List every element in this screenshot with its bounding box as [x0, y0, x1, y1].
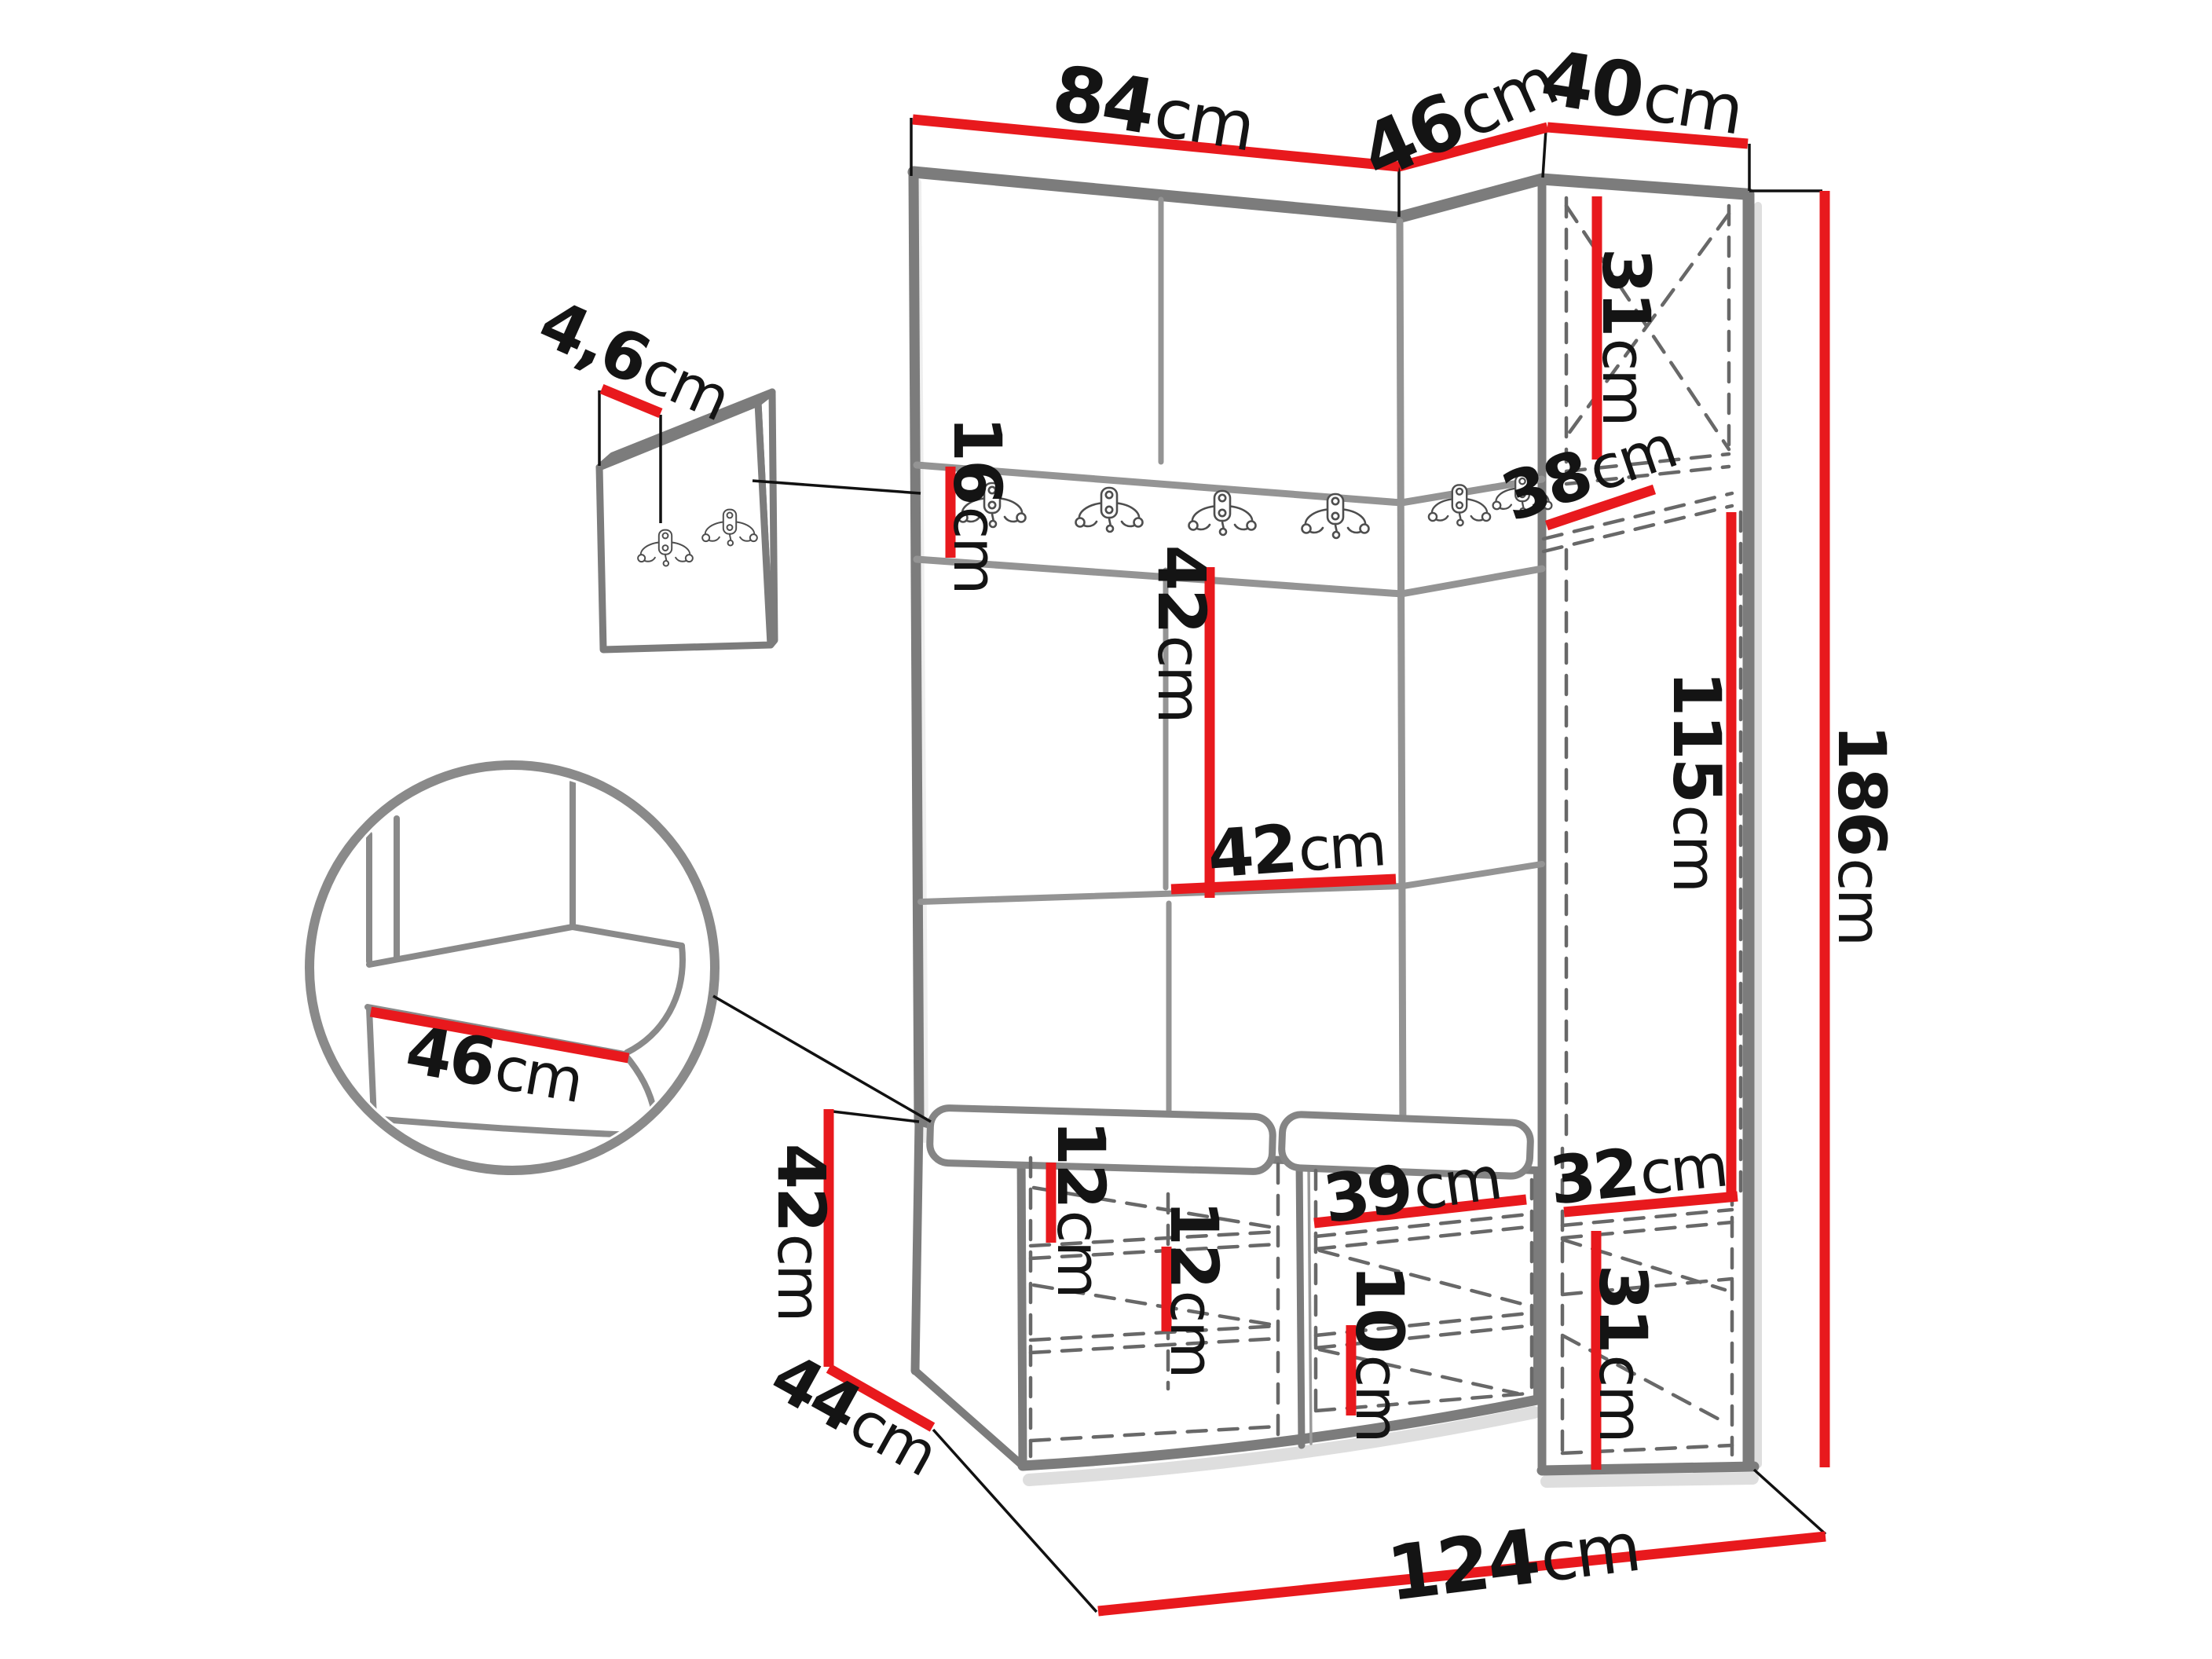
dim-unit: cm: [1347, 1355, 1407, 1441]
dim-unit: cm: [769, 1234, 829, 1320]
wall-panel-seams: [917, 200, 1542, 1141]
dim-label-bottom-shelf-depth: 32 cm: [1547, 1130, 1729, 1214]
dim-value: 84: [1048, 54, 1159, 145]
dim-value: 39: [1320, 1155, 1415, 1233]
dim-unit: cm: [1639, 63, 1746, 145]
dim-unit: cm: [1591, 1355, 1650, 1441]
hook-rail: [959, 475, 1552, 538]
dim-label-bottom-door-height: 31 cm: [1590, 1265, 1656, 1441]
dim-unit: cm: [1829, 858, 1889, 944]
dim-unit: cm: [1664, 804, 1724, 891]
dim-value: 42: [1148, 545, 1214, 632]
dim-unit: cm: [1149, 635, 1209, 722]
dim-label-wall-panel-height: 42 cm: [1148, 545, 1214, 722]
diagram-canvas: 84 cm 46 cm 40 cm 4,6 cm 16 cm 31 cm 38 …: [0, 0, 2212, 1659]
dim-label-total-height: 186 cm: [1829, 724, 1895, 944]
dim-value: 40: [1536, 40, 1647, 130]
hook-panel-detail: [599, 392, 775, 650]
dim-unit: cm: [1410, 1148, 1503, 1220]
detail-circle: [309, 765, 715, 1170]
dim-value: 42: [1206, 815, 1297, 888]
dim-label-bench-shelf-gap-lower: 12 cm: [1161, 1200, 1227, 1377]
dim-value: 42: [768, 1144, 834, 1231]
dim-unit: cm: [490, 1038, 585, 1111]
dim-value: 31: [1593, 248, 1659, 335]
dim-label-bench-height: 42 cm: [768, 1144, 834, 1320]
leader-line-detail-circle: [713, 996, 931, 1122]
dim-value: 124: [1383, 1519, 1542, 1613]
dim-label-wall-panel-width: 42 cm: [1206, 809, 1386, 887]
dim-value: 31: [1590, 1265, 1656, 1352]
dim-unit: cm: [1049, 1210, 1108, 1297]
dim-unit: cm: [945, 507, 1005, 593]
dim-unit: cm: [1637, 1135, 1729, 1203]
dim-value: 115: [1664, 671, 1730, 801]
dim-unit: cm: [1594, 339, 1654, 425]
dim-value: 12: [1048, 1120, 1114, 1207]
dim-unit: cm: [1149, 79, 1258, 161]
dim-label-cabinet-door-height: 115 cm: [1664, 671, 1730, 891]
dim-unit: cm: [1536, 1514, 1643, 1593]
dim-value: 32: [1547, 1139, 1640, 1214]
coat-hook-icon: [1189, 491, 1256, 535]
dim-value: 10: [1346, 1265, 1412, 1352]
dim-value: 12: [1161, 1200, 1227, 1287]
dim-label-bench-right-shelf-gap: 10 cm: [1346, 1265, 1412, 1441]
dim-value: 46: [401, 1016, 499, 1097]
coat-hook-icon: [1076, 488, 1143, 532]
dim-label-hook-rail-height: 16 cm: [944, 416, 1010, 593]
dim-unit: cm: [1162, 1291, 1221, 1377]
dim-label-cabinet-top-height: 31 cm: [1593, 248, 1659, 425]
dim-value: 16: [944, 416, 1010, 504]
dim-value: 186: [1829, 724, 1895, 855]
leader-line-hook-panel: [753, 481, 921, 493]
dim-label-bench-shelf-gap-upper: 12 cm: [1048, 1120, 1114, 1297]
dim-unit: cm: [1296, 815, 1386, 880]
